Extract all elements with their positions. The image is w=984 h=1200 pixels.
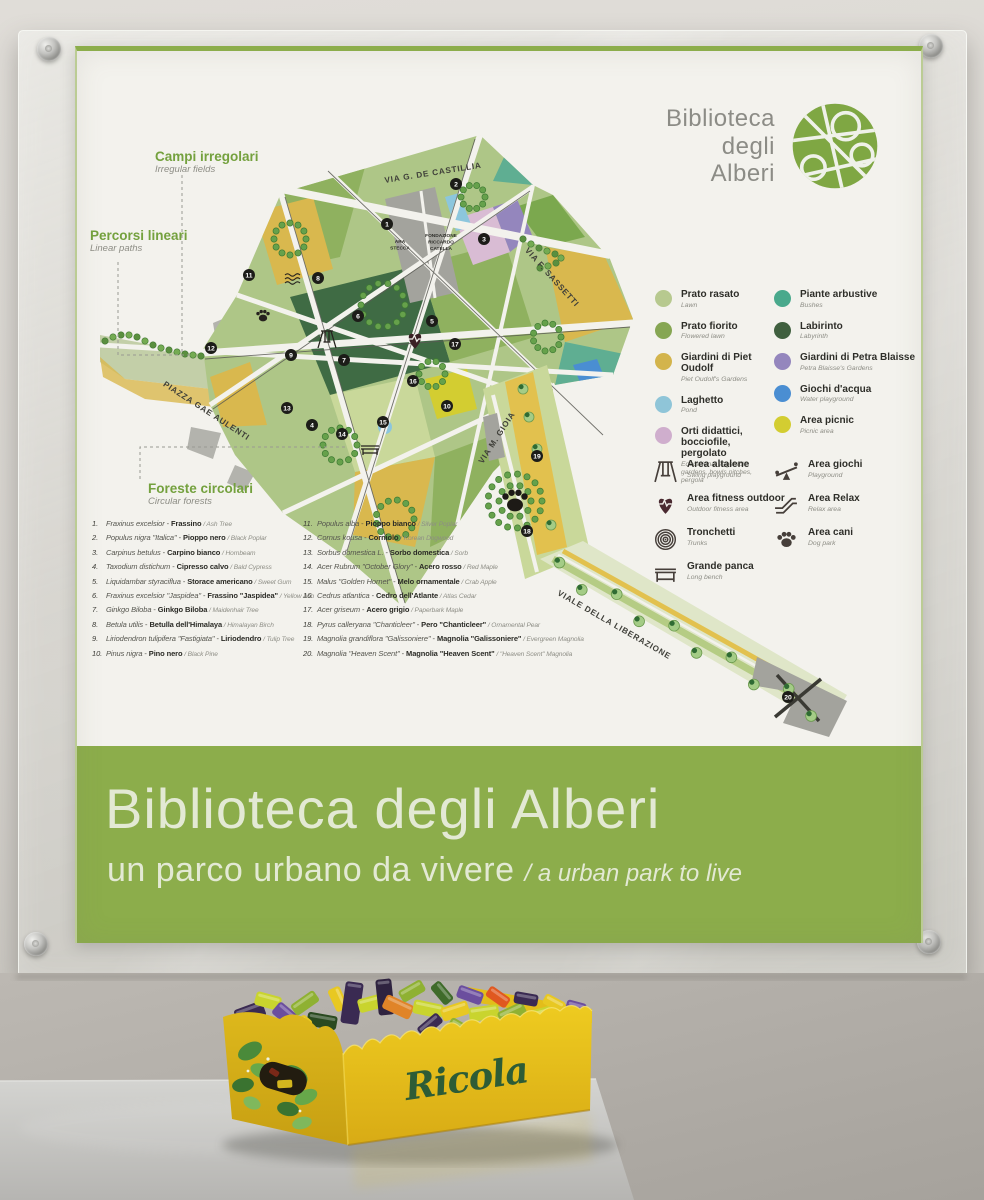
legend-icon-label: Grande panca [687, 561, 754, 572]
legend-area-item: Area picnicPicnic area [774, 415, 922, 436]
legend-icon-label: Area fitness outdoor [687, 493, 785, 504]
map-marker-number: 16 [409, 378, 417, 385]
park-subtitle: un parco urbano da vivere / a urban park… [107, 851, 742, 890]
legend-area-label: Laghetto [681, 395, 723, 406]
legend-icon-item: Area altalene Swing playground [653, 459, 785, 484]
poster-banner: Biblioteca degli Alberi un parco urbano … [77, 746, 921, 943]
legend-icon-label: Area cani [808, 527, 853, 538]
tree-list-item: 10.Pinus nigra - Pino nero / Black Pine [92, 647, 314, 661]
legend-area-label: Orti didattici, bocciofile, pergolato [681, 426, 769, 459]
legend-area-item: Giochi d'acquaWater playground [774, 384, 922, 405]
legend-area-label: Labirinto [800, 321, 843, 332]
map-marker-number: 5 [430, 318, 434, 325]
legend-area-sublabel: Flowered lawn [681, 333, 738, 341]
tree-list-column-1: 1.Fraxinus excelsior - Frassino / Ash Tr… [92, 517, 314, 661]
map-feature-label: Percorsi lineari [90, 228, 188, 243]
building-label: RICCARDO [428, 240, 454, 246]
legend-area-item: Prato fioritoFlowered lawn [655, 321, 769, 342]
standoff-screw-bottom-left [24, 932, 48, 956]
legend-icon-sublabel: Relax area [808, 506, 860, 514]
legend-icon-item: Area giochi Playground [774, 459, 862, 484]
park-subtitle-en: / a urban park to live [525, 860, 742, 887]
tree-list-item: 9.Liriodendron tulipifera "Fastigiata" -… [92, 632, 314, 646]
legend-icon-label: Area altalene [687, 459, 749, 470]
area-color-dot [655, 396, 672, 413]
map-marker-number: 11 [245, 272, 252, 279]
park-sign-poster: Biblioteca degli Alberi [75, 46, 923, 943]
park-subtitle-it: un parco urbano da vivere [107, 851, 515, 889]
legend-area-sublabel: Piet Oudolf's Gardens [681, 376, 769, 384]
tree-list-item: 12.Cornus kousa - Corniolo / Korean Dogw… [303, 531, 584, 545]
map-marker-number: 13 [283, 405, 291, 412]
legend-icon-label: Area giochi [808, 459, 862, 470]
legend-areas-column-2: Piante arbustiveBushesLabirintoLabyrinth… [774, 289, 922, 447]
legend-area-sublabel: Lawn [681, 302, 739, 310]
legend-icon-sublabel: Trunks [687, 540, 735, 548]
legend-area-item: LaghettoPond [655, 395, 769, 416]
tree-list-item: 5.Liquidambar styraciflua - Storace amer… [92, 575, 314, 589]
legend-icon-label: Area Relax [808, 493, 860, 504]
legend-icon-sublabel: Dog park [808, 540, 853, 548]
map-marker-number: 4 [310, 422, 314, 429]
map-marker-number: 7 [342, 357, 346, 364]
bench-icon [653, 561, 678, 586]
park-title: Biblioteca degli Alberi [105, 776, 660, 841]
legend-area-sublabel: Bushes [800, 302, 877, 310]
paw-icon [774, 527, 799, 552]
area-color-dot [655, 353, 672, 370]
tree-list-item: 16.Cedrus atlantica - Cedro dell'Atlante… [303, 589, 584, 603]
map-feature-sublabel: Linear paths [90, 243, 143, 254]
table-scene: Ricola [0, 973, 984, 1200]
legend-area-sublabel: Water playground [800, 396, 871, 404]
legend-icon-item: Area Relax Relax area [774, 493, 862, 518]
tree-rings-icon [653, 527, 678, 552]
tree-list-item: 18.Pyrus calleryana "Chanticleer" - Pero… [303, 618, 584, 632]
map-marker-number: 3 [482, 236, 486, 243]
tree-list-item: 19.Magnolia grandiflora "Galissoniere" -… [303, 632, 584, 646]
building-label: FONDAZIONE [425, 233, 458, 239]
building-label: STECCA [390, 246, 410, 252]
legend-area-label: Area picnic [800, 415, 854, 426]
heart-pulse-icon [653, 493, 678, 518]
legend-icon-item: Tronchetti Trunks [653, 527, 785, 552]
legend-icon-item: Grande panca Long bench [653, 561, 785, 586]
map-marker-number: 2 [454, 181, 458, 188]
area-color-dot [774, 416, 791, 433]
legend-icon-item: Area cani Dog park [774, 527, 862, 552]
legend-icon-sublabel: Long bench [687, 574, 754, 582]
legend-area-label: Prato rasato [681, 289, 739, 300]
legend-area-label: Giochi d'acqua [800, 384, 871, 395]
legend-icon-item: Area fitness outdoor Outdoor fitness are… [653, 493, 785, 518]
glass-shadow [16, 973, 966, 980]
legend-area-item: Giardini di Petra BlaissePetra Blaisse's… [774, 352, 922, 373]
tree-list-item: 20.Magnolia "Heaven Scent" - Magnolia "H… [303, 647, 584, 661]
area-color-dot [774, 353, 791, 370]
map-feature-sublabel: Circular forests [148, 496, 212, 507]
tree-list-item: 4.Taxodium distichum - Cipresso calvo / … [92, 560, 314, 574]
area-color-dot [655, 427, 672, 444]
legend-area-sublabel: Picnic area [800, 428, 854, 436]
legend-icon-label: Tronchetti [687, 527, 735, 538]
map-marker-number: 1 [385, 221, 389, 228]
map-marker-number: 10 [443, 403, 451, 410]
legend-area-sublabel: Pond [681, 407, 723, 415]
map-marker-number: 14 [338, 431, 346, 438]
legend-area-item: Giardini di Piet OudolfPiet Oudolf's Gar… [655, 352, 769, 384]
area-color-dot [655, 290, 672, 307]
building-label: CATELLA [430, 246, 453, 252]
legend-area-item: LabirintoLabyrinth [774, 321, 922, 342]
area-color-dot [774, 385, 791, 402]
tree-list-item: 3.Carpinus betulus - Carpino bianco / Ho… [92, 546, 314, 560]
tree-list-column-2: 11.Populus alba - Pioppo bianco / Silver… [303, 517, 584, 661]
legend-area-label: Piante arbustive [800, 289, 877, 300]
legend-icon-sublabel: Outdoor fitness area [687, 506, 785, 514]
standoff-screw-top-left [37, 37, 61, 61]
map-marker-number: 19 [533, 453, 541, 460]
map-marker-number: 17 [451, 341, 459, 348]
map-feature-label: Campi irregolari [155, 149, 259, 164]
tree-list-item: 6.Fraxinus excelsior "Jaspidea" - Frassi… [92, 589, 314, 603]
tree-list-item: 2.Populus nigra "Italica" - Pioppo nero … [92, 531, 314, 545]
tree-list-item: 7.Ginkgo Biloba - Ginkgo Biloba / Maiden… [92, 603, 314, 617]
legend-area-item: Piante arbustiveBushes [774, 289, 922, 310]
lounger-icon [774, 493, 799, 518]
tree-list-item: 1.Fraxinus excelsior - Frassino / Ash Tr… [92, 517, 314, 531]
legend-area-sublabel: Petra Blaisse's Gardens [800, 365, 915, 373]
map-feature-sublabel: Irregular fields [155, 164, 215, 175]
tree-list-item: 14.Acer Rubrum "October Glory" - Acero r… [303, 560, 584, 574]
map-marker-number: 9 [289, 352, 293, 359]
swing-icon [653, 459, 678, 484]
photo-scene: Biblioteca degli Alberi [0, 0, 984, 1200]
legend-area-item: Prato rasatoLawn [655, 289, 769, 310]
map-marker-number: 12 [207, 345, 215, 352]
legend-area-label: Giardini di Piet Oudolf [681, 352, 769, 374]
map-marker-number: 15 [379, 419, 387, 426]
legend-icons-column-2: Area giochi Playground Area Relax Relax … [774, 459, 862, 561]
map-feature-label: Foreste circolari [148, 481, 253, 496]
area-color-dot [774, 322, 791, 339]
legend-area-label: Giardini di Petra Blaisse [800, 352, 915, 363]
tree-list-item: 15.Malus "Golden Hornet" - Melo ornament… [303, 575, 584, 589]
tree-list-item: 13.Sorbus domestica L. - Sorbo domestica… [303, 546, 584, 560]
legend-area-sublabel: Labyrinth [800, 333, 843, 341]
tree-list-item: 8.Betula utilis - Betulla dell'Himalaya … [92, 618, 314, 632]
area-color-dot [655, 322, 672, 339]
seesaw-icon [774, 459, 799, 484]
tree-list-item: 11.Populus alba - Pioppo bianco / Silver… [303, 517, 584, 531]
legend-icon-sublabel: Playground [808, 472, 862, 480]
tree-list-item: 17.Acer griseum - Acero grigio / Paperba… [303, 603, 584, 617]
legend-area-label: Prato fiorito [681, 321, 738, 332]
area-color-dot [774, 290, 791, 307]
building-label: ARA [395, 239, 406, 245]
map-marker-number: 20 [784, 694, 792, 701]
map-marker-number: 8 [316, 275, 320, 282]
map-building [187, 427, 221, 459]
legend-icon-sublabel: Swing playground [687, 472, 749, 480]
legend-icons-column-1: Area altalene Swing playground Area fitn… [653, 459, 785, 595]
map-marker-number: 6 [356, 313, 360, 320]
